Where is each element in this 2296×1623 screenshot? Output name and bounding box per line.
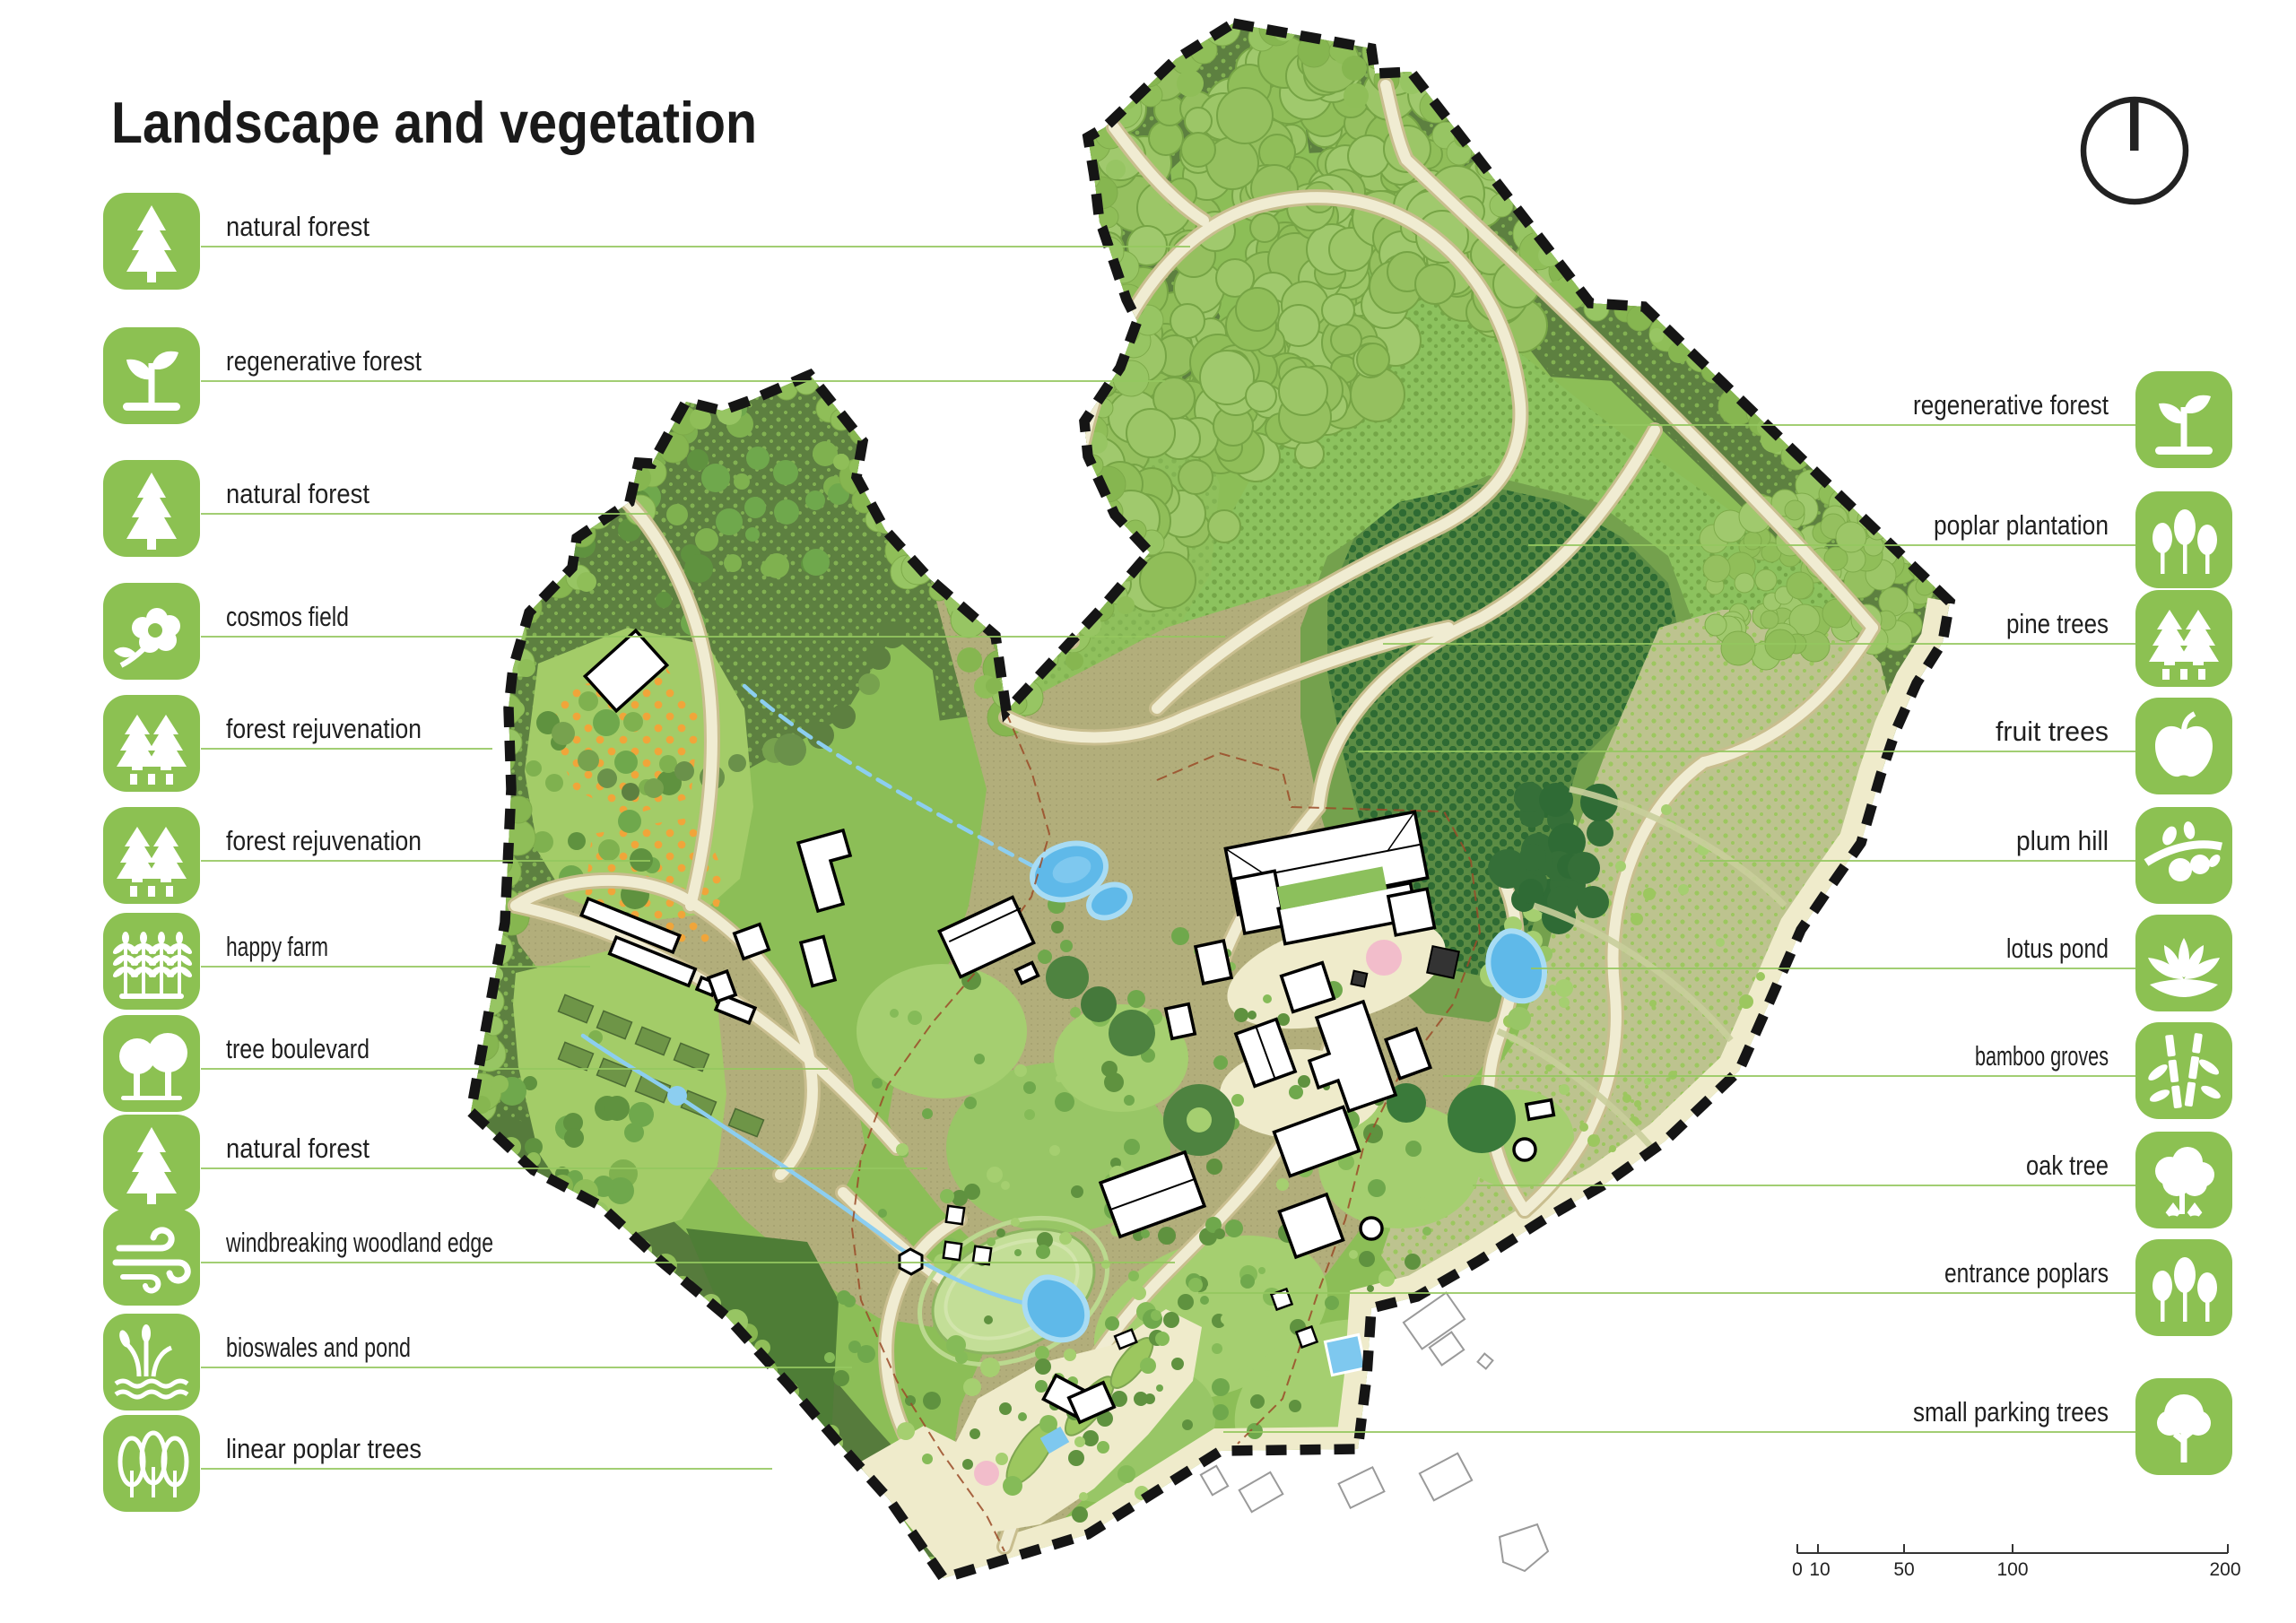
svg-text:windbreaking woodland edge: windbreaking woodland edge (225, 1227, 493, 1258)
svg-text:natural forest: natural forest (226, 211, 370, 242)
svg-text:linear poplar trees: linear poplar trees (226, 1433, 422, 1464)
svg-text:plum hill: plum hill (2016, 825, 2109, 856)
svg-text:tree boulevard: tree boulevard (226, 1033, 370, 1064)
svg-text:regenerative forest: regenerative forest (226, 345, 422, 377)
svg-text:fruit trees: fruit trees (1996, 716, 2109, 747)
svg-text:pine trees: pine trees (2006, 608, 2109, 639)
svg-text:100: 100 (1996, 1559, 2028, 1580)
svg-text:small parking trees: small parking trees (1913, 1396, 2109, 1428)
svg-text:natural forest: natural forest (226, 1133, 370, 1164)
svg-text:Landscape and vegetation: Landscape and vegetation (111, 90, 757, 155)
svg-text:poplar plantation: poplar plantation (1934, 509, 2109, 541)
svg-text:lotus pond: lotus pond (2006, 933, 2109, 964)
svg-text:10: 10 (1809, 1559, 1830, 1580)
svg-text:bioswales and pond: bioswales and pond (226, 1332, 411, 1363)
svg-text:50: 50 (1893, 1559, 1914, 1580)
svg-text:200: 200 (2209, 1559, 2240, 1580)
svg-text:oak tree: oak tree (2026, 1150, 2109, 1181)
svg-text:regenerative forest: regenerative forest (1913, 389, 2109, 421)
svg-text:0: 0 (1792, 1559, 1803, 1580)
svg-text:forest rejuvenation: forest rejuvenation (226, 825, 422, 856)
svg-text:forest rejuvenation: forest rejuvenation (226, 713, 422, 744)
svg-text:entrance poplars: entrance poplars (1944, 1257, 2109, 1289)
svg-text:happy farm: happy farm (226, 931, 328, 962)
svg-text:bamboo groves: bamboo groves (1975, 1040, 2109, 1072)
svg-text:natural forest: natural forest (226, 478, 370, 509)
svg-text:cosmos field: cosmos field (226, 601, 349, 632)
